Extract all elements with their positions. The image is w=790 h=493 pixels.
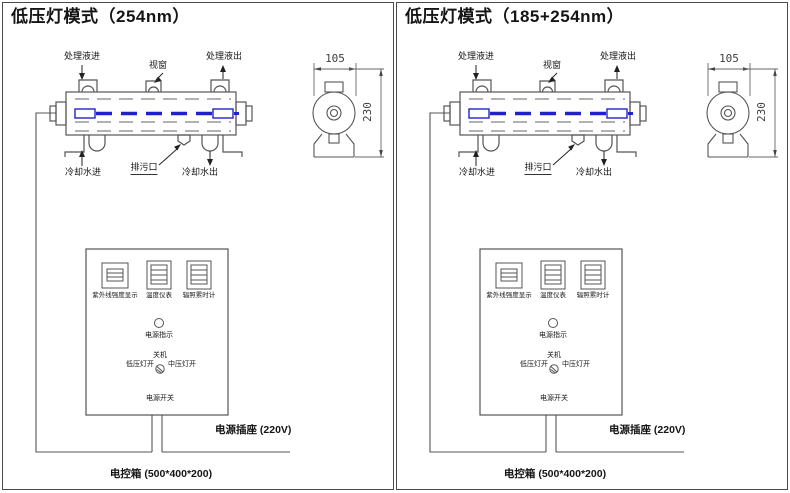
power-indicator-label: 电源指示 xyxy=(539,332,567,340)
power-socket-label: 电源插座 (220V) xyxy=(215,425,291,437)
inlet-label: 处理液进 xyxy=(458,52,494,62)
drawing-sheet: 低压灯模式（254nm） 处理液进 视窗 处理液出 冷却水进 排污口 冷却水出 … xyxy=(0,0,790,493)
lamp-right-holder xyxy=(213,109,233,118)
inlet-port xyxy=(79,80,97,92)
power-indicator-lamp xyxy=(155,319,164,328)
cooling-out-label: 冷却水出 xyxy=(182,168,218,178)
power-socket-label: 电源插座 (220V) xyxy=(609,425,685,437)
lamp-right-holder xyxy=(607,109,627,118)
rotary-switch-knob xyxy=(156,365,164,373)
rotary-switch-knob xyxy=(550,365,558,373)
power-switch-label: 电源开关 xyxy=(146,395,174,403)
panel-drawing xyxy=(397,3,789,491)
cooling-in-label: 冷却水进 xyxy=(459,168,495,178)
diagram-panel-185-254nm: 低压灯模式（185+254nm） 处理液进 视窗 处理液出 冷却水进 排污口 冷… xyxy=(396,2,788,490)
height-dimension-text: 230 xyxy=(756,102,768,122)
end-view-base-notch xyxy=(329,134,339,143)
uv-chamber-side-view xyxy=(444,65,646,166)
cooling-in-port xyxy=(483,135,499,151)
power-indicator-lamp xyxy=(549,319,558,328)
drain-port xyxy=(572,135,584,145)
end-view-base-notch xyxy=(723,134,733,143)
uv-intensity-meter xyxy=(496,263,522,288)
drain-label: 排污口 xyxy=(524,163,551,175)
cooling-out-label: 冷却水出 xyxy=(576,168,612,178)
uv-lamp xyxy=(75,109,239,118)
switch-off-label: 关机 xyxy=(547,352,561,360)
lamp-left-holder xyxy=(469,109,489,118)
temperature-meter xyxy=(147,261,171,289)
switch-low-label: 低压灯开 xyxy=(520,361,548,369)
uv-intensity-meter xyxy=(102,263,128,288)
diagram-panel-254nm: 低压灯模式（254nm） 处理液进 视窗 处理液出 冷却水进 排污口 冷却水出 … xyxy=(2,2,394,490)
panel-title: 低压灯模式（185+254nm） xyxy=(405,8,624,27)
uv-chamber-side-view xyxy=(50,65,252,166)
cooling-out-port xyxy=(202,135,218,151)
drain-label: 排污口 xyxy=(130,163,157,175)
control-box-size-label: 电控箱 (500*400*200) xyxy=(504,469,606,481)
right-end-fitting-cap xyxy=(246,106,252,121)
flow-arrows xyxy=(473,65,620,166)
window-port xyxy=(540,81,555,92)
temperature-meter xyxy=(541,261,565,289)
control-box-size-label: 电控箱 (500*400*200) xyxy=(110,469,212,481)
right-leg xyxy=(617,135,636,157)
window-port xyxy=(146,81,161,92)
outlet-label: 处理液出 xyxy=(600,52,636,62)
power-switch-label: 电源开关 xyxy=(540,395,568,403)
switch-medium-label: 中压灯开 xyxy=(168,361,196,369)
right-leg xyxy=(223,135,242,157)
hour-counter-meter-label: 辐照累时计 xyxy=(183,292,216,299)
outlet-port xyxy=(211,80,229,92)
flow-arrows xyxy=(79,65,226,166)
width-dimension-text: 105 xyxy=(325,53,345,65)
cooling-in-port xyxy=(89,135,105,151)
temperature-meter-label: 温度仪表 xyxy=(146,292,172,299)
window-label: 视窗 xyxy=(149,61,167,71)
lamp-left-holder xyxy=(75,109,95,118)
height-dimension-text: 230 xyxy=(362,102,374,122)
panel-drawing xyxy=(3,3,395,491)
switch-medium-label: 中压灯开 xyxy=(562,361,590,369)
drain-port xyxy=(178,135,190,145)
hour-counter-meter-label: 辐照累时计 xyxy=(577,292,610,299)
temperature-meter-label: 温度仪表 xyxy=(540,292,566,299)
right-end-fitting-cap xyxy=(640,106,646,121)
hour-counter-meter xyxy=(581,261,605,289)
inlet-label: 处理液进 xyxy=(64,52,100,62)
outlet-label: 处理液出 xyxy=(206,52,242,62)
width-dimension-text: 105 xyxy=(719,53,739,65)
inlet-port xyxy=(473,80,491,92)
uv-intensity-meter-label: 紫外线强度显示 xyxy=(92,292,138,299)
outlet-port xyxy=(605,80,623,92)
cooling-out-port xyxy=(596,135,612,151)
uv-lamp xyxy=(469,109,633,118)
end-view-lamp-core xyxy=(331,110,338,117)
power-indicator-label: 电源指示 xyxy=(145,332,173,340)
switch-off-label: 关机 xyxy=(153,352,167,360)
end-view-top-stub xyxy=(325,82,343,92)
panel-title: 低压灯模式（254nm） xyxy=(11,8,190,27)
left-end-fitting xyxy=(450,102,460,125)
window-label: 视窗 xyxy=(543,61,561,71)
hour-counter-meter xyxy=(187,261,211,289)
switch-low-label: 低压灯开 xyxy=(126,361,154,369)
end-view-lamp-core xyxy=(725,110,732,117)
cooling-in-label: 冷却水进 xyxy=(65,168,101,178)
left-end-fitting xyxy=(56,102,66,125)
end-view-top-stub xyxy=(719,82,737,92)
uv-intensity-meter-label: 紫外线强度显示 xyxy=(486,292,532,299)
